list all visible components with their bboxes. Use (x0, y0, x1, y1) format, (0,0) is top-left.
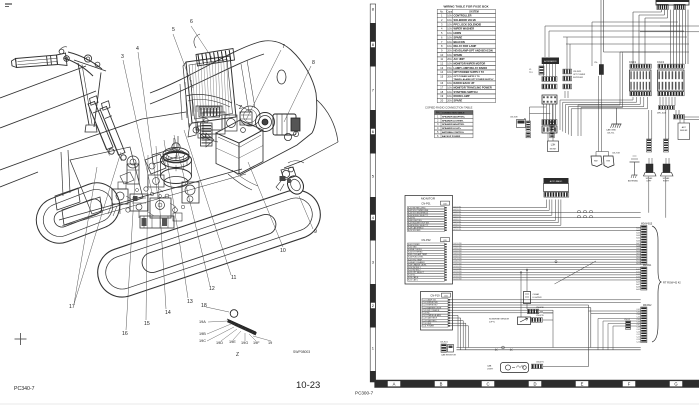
svg-text:B-15 CAN L: B-15 CAN L (408, 279, 418, 282)
svg-text:SPEAKER ADAPTER-: SPEAKER ADAPTER- (442, 123, 465, 126)
svg-text:ROOM LAMP: ROOM LAMP (454, 94, 470, 98)
svg-text:A/C UNIT: A/C UNIT (454, 57, 466, 61)
svg-text:10A: 10A (447, 86, 452, 90)
svg-text:DRL-A13: DRL-A13 (657, 112, 667, 115)
svg-text:20A: 20A (447, 48, 452, 52)
svg-text:MONITOR TRAVELING POWER: MONITOR TRAVELING POWER (454, 86, 492, 90)
svg-text:10A: 10A (447, 14, 452, 18)
svg-text:A-10 SIG GND: A-10 SIG GND (408, 229, 421, 232)
svg-text:10A: 10A (447, 22, 452, 26)
svg-text:19G: 19G (241, 341, 248, 345)
svg-text:PC300-7: PC300-7 (355, 391, 374, 396)
svg-text:10A: 10A (447, 90, 452, 94)
svg-text:CAB GND: CAB GND (606, 129, 616, 132)
svg-text:BACKUP POWER: BACKUP POWER (442, 135, 461, 138)
svg-text:10-23: 10-23 (296, 380, 320, 391)
svg-text:CN-W15: CN-W15 (536, 315, 545, 317)
svg-text:SPEAKER LIGHT+: SPEAKER LIGHT+ (442, 127, 462, 130)
svg-text:RADIO BACK UP: RADIO BACK UP (454, 81, 475, 85)
svg-text:CN-W16: CN-W16 (536, 307, 545, 309)
svg-text:CN-V08: CN-V08 (510, 117, 518, 119)
svg-text:B-07 0.85B: B-07 0.85B (454, 258, 462, 260)
svg-text:12: 12 (209, 286, 215, 292)
svg-text:B-15: B-15 (636, 263, 640, 265)
svg-text:6: 6 (437, 136, 439, 138)
svg-text:BEACON: BEACON (454, 40, 465, 44)
svg-text:9: 9 (314, 229, 317, 235)
svg-text:10A: 10A (447, 70, 452, 74)
svg-text:ALTERNATOR: ALTERNATOR (544, 60, 557, 63)
svg-text:SPEAKER LIGHTER-: SPEAKER LIGHTER- (442, 119, 464, 122)
svg-text:3: 3 (121, 54, 124, 60)
svg-text:10A: 10A (447, 53, 452, 57)
svg-text:11: 11 (440, 57, 443, 61)
svg-text:CN-F2: CN-F2 (657, 61, 665, 64)
svg-text:Z: Z (239, 105, 242, 111)
svg-text:19D: 19D (216, 341, 223, 345)
svg-text:ANT: ANT (682, 126, 687, 129)
svg-text:E: E (581, 382, 584, 387)
svg-text:4: 4 (437, 128, 439, 130)
svg-text:CN-P01: CN-P01 (421, 201, 431, 205)
svg-text:2: 2 (441, 18, 443, 22)
svg-text:CIGAR: CIGAR (533, 293, 540, 296)
svg-text:20: 20 (440, 99, 443, 103)
svg-text:15: 15 (440, 74, 443, 78)
svg-text:13: 13 (187, 299, 193, 305)
svg-text:SPARE: SPARE (454, 35, 463, 39)
svg-text:10A: 10A (447, 31, 452, 35)
svg-text:10A: 10A (447, 94, 452, 98)
svg-text:17: 17 (69, 304, 75, 310)
svg-text:LEFT: LEFT (647, 181, 653, 183)
svg-text:PIN: PIN (436, 112, 440, 114)
svg-text:PPC LOCK SOLENOID: PPC LOCK SOLENOID (454, 22, 482, 26)
svg-text:MONITOR: MONITOR (421, 197, 436, 201)
svg-text:2: 2 (437, 120, 439, 122)
svg-text:A-01 0.85L: A-01 0.85L (454, 205, 462, 208)
svg-text:OPT POWER: OPT POWER (573, 74, 586, 76)
svg-text:9: 9 (441, 48, 443, 52)
svg-text:1: 1 (372, 346, 375, 351)
svg-text:5: 5 (172, 27, 175, 33)
svg-text:10A: 10A (447, 44, 452, 48)
svg-text:AUTO RADIO: AUTO RADIO (550, 180, 563, 183)
svg-text:10A: 10A (447, 18, 452, 22)
svg-text:8: 8 (441, 44, 443, 48)
svg-text:10: 10 (280, 248, 286, 254)
svg-text:TRAVEL ALARM OPT POWER SUPPLY: TRAVEL ALARM OPT POWER SUPPLY (454, 78, 495, 81)
svg-text:3: 3 (372, 260, 375, 265)
svg-text:CN-T08: CN-T08 (612, 153, 620, 155)
svg-text:SPARE: SPARE (454, 99, 463, 103)
svg-text:8: 8 (312, 60, 315, 66)
svg-text:SUPPLIER: SUPPLIER (573, 77, 583, 79)
svg-text:ANTENNA CONTROL: ANTENNA CONTROL (442, 131, 465, 134)
svg-text:B-12 0.85B: B-12 0.85B (454, 271, 462, 273)
svg-text:(10): (10) (443, 203, 447, 205)
svg-text:L3H: L3H (551, 144, 556, 147)
svg-text:16: 16 (440, 81, 443, 85)
svg-text:13: 13 (440, 66, 443, 70)
svg-text:7: 7 (441, 40, 443, 44)
svg-text:HORN: HORN (454, 31, 462, 35)
svg-text:19C: 19C (199, 339, 206, 343)
svg-text:F1: F1 (524, 119, 527, 121)
svg-text:B-11 0.85B: B-11 0.85B (454, 268, 462, 270)
svg-text:RIGHT: RIGHT (663, 181, 670, 183)
svg-text:T13: T13 (529, 72, 533, 74)
svg-text:RT ROW-42 42: RT ROW-42 42 (663, 281, 681, 285)
svg-text:B-10 0.85B: B-10 0.85B (454, 266, 462, 268)
svg-text:LIGHTER: LIGHTER (533, 297, 543, 299)
svg-text:CN-K01: CN-K01 (440, 342, 449, 344)
svg-text:(11): (11) (444, 295, 448, 297)
svg-text:12: 12 (440, 62, 443, 66)
svg-text:CN-T11: CN-T11 (607, 133, 615, 135)
svg-text:3: 3 (441, 22, 443, 26)
svg-text:SUNSHINE SENSOR: SUNSHINE SENSOR (489, 319, 510, 321)
svg-text:4: 4 (441, 27, 443, 31)
svg-text:CN-P19: CN-P19 (430, 293, 440, 297)
svg-text:B-04 0.85B: B-04 0.85B (454, 251, 462, 253)
svg-text:CN-: CN- (594, 62, 598, 64)
svg-text:RW: RW (607, 161, 610, 163)
svg-text:RW: RW (594, 161, 597, 163)
svg-text:(OPT): (OPT) (489, 322, 495, 324)
svg-text:PC340-7: PC340-7 (14, 386, 35, 392)
svg-text:CAN RESISTOR: CAN RESISTOR (441, 354, 457, 357)
svg-text:B-15 0.85B: B-15 0.85B (454, 279, 462, 281)
svg-text:18: 18 (201, 303, 207, 309)
svg-text:OPT POWER SUPPLY TO: OPT POWER SUPPLY TO (454, 76, 480, 78)
svg-text:19A: 19A (199, 320, 206, 324)
svg-text:CN-P02: CN-P02 (421, 238, 431, 242)
svg-text:20A: 20A (447, 57, 452, 61)
svg-text:10A: 10A (447, 62, 452, 66)
svg-text:B-05 0.85B: B-05 0.85B (454, 253, 462, 255)
svg-text:CN-W21: CN-W21 (573, 71, 582, 73)
svg-text:G: G (674, 382, 677, 387)
svg-text:19: 19 (440, 94, 443, 98)
svg-text:6: 6 (190, 19, 193, 25)
svg-text:WIPER WASHER: WIPER WASHER (454, 27, 475, 31)
svg-text:19B: 19B (199, 332, 206, 336)
svg-text:18: 18 (440, 90, 443, 94)
svg-text:3: 3 (437, 124, 439, 126)
svg-text:LAMP LAMP RELAY RADIO: LAMP LAMP RELAY RADIO (454, 66, 488, 70)
svg-text:8: 8 (372, 7, 375, 12)
svg-text:OPT POWER SUPPLY T/I: OPT POWER SUPPLY T/I (454, 70, 485, 74)
svg-text:17: 17 (440, 86, 443, 90)
svg-text:MONIT: MONIT (550, 149, 557, 151)
svg-text:SOLENOID VALVE: SOLENOID VALVE (454, 18, 477, 22)
svg-text:16: 16 (122, 331, 128, 337)
svg-text:L5: L5 (529, 69, 532, 71)
svg-text:MD/W-B15: MD/W-B15 (641, 224, 653, 226)
svg-text:F: F (628, 382, 631, 387)
svg-text:B-08 0.85B: B-08 0.85B (454, 261, 462, 263)
svg-text:10A: 10A (447, 35, 452, 39)
svg-text:A-09: A-09 (636, 288, 640, 291)
svg-text:5: 5 (437, 132, 439, 134)
svg-text:1: 1 (441, 14, 443, 18)
svg-text:15: 15 (144, 321, 150, 327)
svg-text:CN-X2: CN-X2 (624, 319, 631, 321)
svg-text:20A: 20A (447, 74, 452, 78)
svg-text:B-01 0.85B: B-01 0.85B (454, 243, 462, 245)
svg-text:CN-F1: CN-F1 (629, 61, 637, 64)
svg-text:CAB: CAB (487, 365, 492, 368)
svg-text:SPARE: SPARE (454, 53, 463, 57)
svg-text:B-13 0.85B: B-13 0.85B (454, 273, 462, 275)
svg-text:WIRING TABLE FOR FUSE BOX: WIRING TABLE FOR FUSE BOX (443, 5, 488, 9)
svg-text:10A: 10A (447, 27, 452, 31)
svg-text:B-14 0.85B: B-14 0.85B (454, 276, 462, 278)
svg-text:A: A (393, 382, 396, 387)
svg-text:20A: 20A (447, 99, 452, 103)
svg-text:1: 1 (437, 116, 439, 118)
svg-text:19E: 19E (229, 340, 236, 344)
svg-text:(15): (15) (443, 240, 447, 242)
svg-text:10: 10 (440, 53, 443, 57)
svg-text:B-09 0.85B: B-09 0.85B (454, 263, 462, 265)
svg-text:CN-W71: CN-W71 (536, 362, 545, 364)
svg-text:5: 5 (372, 174, 375, 179)
svg-text:MD-B12: MD-B12 (643, 305, 652, 307)
svg-text:FEEDER: FEEDER (680, 130, 688, 132)
svg-text:CONNECTION TABLE: CONNECTION TABLE (442, 111, 465, 114)
svg-text:RELAY FOR LAMP: RELAY FOR LAMP (454, 44, 477, 48)
svg-text:10A: 10A (447, 40, 452, 44)
svg-text:6: 6 (441, 35, 443, 39)
svg-text:15A: 15A (447, 66, 452, 70)
svg-text:C-14: C-14 (636, 342, 640, 344)
svg-text:COPIED RADIO CONNECTION TABLE: COPIED RADIO CONNECTION TABLE (425, 106, 473, 110)
svg-text:14: 14 (165, 310, 171, 316)
svg-text:MD-B11: MD-B11 (643, 265, 652, 267)
svg-text:HEADLAMP-OPT AND BEACON: HEADLAMP-OPT AND BEACON (454, 48, 493, 52)
svg-text:Z: Z (236, 352, 239, 358)
svg-text:19: 19 (268, 341, 272, 345)
svg-text:B-02 0.85B: B-02 0.85B (454, 245, 462, 247)
svg-text:11: 11 (231, 275, 236, 281)
svg-text:LIGHT: LIGHT (487, 369, 494, 371)
svg-text:B-06 0.85B: B-06 0.85B (454, 256, 462, 258)
svg-text:CONTROLLER: CONTROLLER (454, 14, 472, 18)
svg-text:SWP08003: SWP08003 (293, 350, 310, 354)
svg-text:5: 5 (441, 31, 443, 35)
svg-text:C-11 POWER: C-11 POWER (423, 326, 435, 328)
svg-text:B-03 0.85B: B-03 0.85B (454, 248, 462, 250)
svg-text:10A: 10A (447, 81, 452, 85)
svg-text:C: C (486, 382, 489, 387)
svg-text:MONITOR WIPER MOTOR: MONITOR WIPER MOTOR (454, 62, 486, 66)
svg-text:19F: 19F (253, 341, 260, 345)
svg-text:B: B (440, 382, 443, 387)
svg-text:7: 7 (372, 88, 375, 93)
svg-text:ANTENNA: ANTENNA (628, 180, 638, 183)
svg-text:7: 7 (282, 44, 285, 50)
svg-text:STARTING SWITCH: STARTING SWITCH (454, 90, 478, 94)
svg-text:SPEAKER ADAPTER+: SPEAKER ADAPTER+ (442, 115, 466, 118)
svg-text:4: 4 (136, 46, 139, 52)
svg-text:14: 14 (440, 70, 443, 74)
svg-text:D: D (533, 382, 536, 387)
